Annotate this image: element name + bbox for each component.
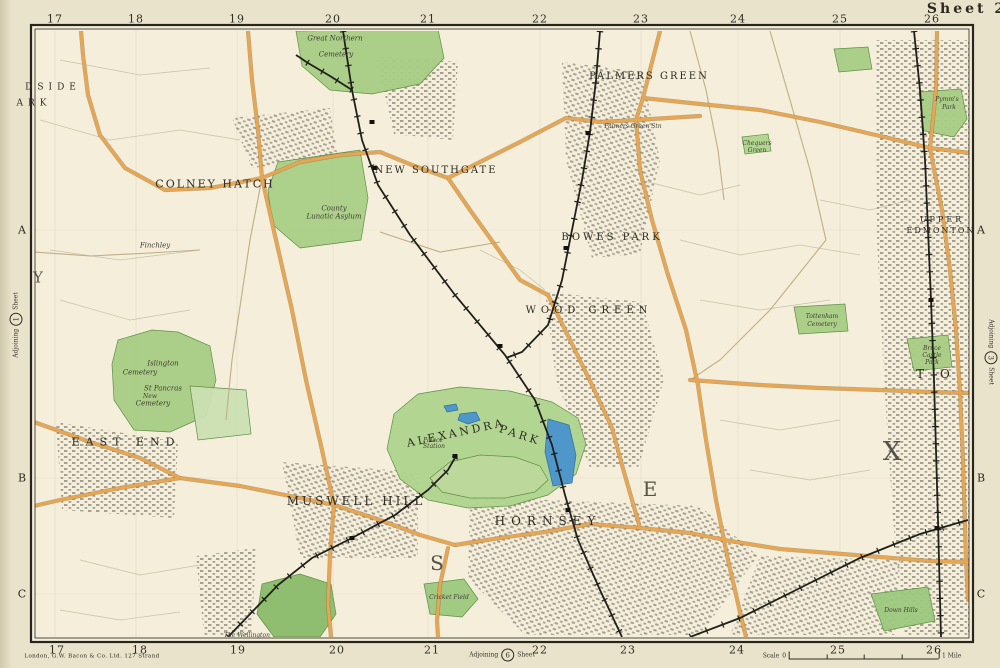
grid-number-top-19: 19	[229, 14, 245, 25]
grid-number-top-26: 26	[924, 14, 940, 25]
grid-number-top-23: 23	[633, 14, 649, 25]
adjoining-bottom-sheet-number: 6	[501, 649, 514, 662]
map-label-ark: ARK	[17, 100, 52, 109]
map-label-cemetery: Cemetery	[123, 370, 158, 377]
map-label-great-northern: Great Northern	[307, 36, 362, 43]
map-label-bowes-park: BOWES PARK	[561, 233, 662, 243]
scale-zero: 0	[782, 653, 786, 660]
adjoining-right-sheet-number: 3	[985, 351, 998, 364]
grid-number-top-21: 21	[420, 14, 436, 25]
map-label-finchley: Finchley	[140, 243, 170, 250]
grid-number-top-20: 20	[325, 14, 341, 25]
map-sheet: Sheet 2 COLNEY HATCHNEW SOUTHGATEPALMERS…	[0, 0, 1000, 668]
map-label-cemetery: Cemetery	[136, 401, 171, 408]
map-label-dside: DSIDE	[25, 84, 81, 93]
station-marker	[935, 526, 940, 530]
station-marker	[564, 246, 569, 250]
map-label-colney-hatch: COLNEY HATCH	[155, 179, 274, 190]
map-label-palmers-green-stn: Palmers Green Stn	[604, 124, 661, 130]
scale-tick	[902, 655, 903, 659]
map-label-green: Green	[748, 148, 767, 154]
station-marker	[566, 508, 571, 512]
map-label-park: Park	[942, 105, 956, 111]
adjoining-right-word: Adjoining	[988, 319, 995, 348]
map-label-x: X	[883, 439, 902, 465]
grid-number-bottom-19: 19	[230, 645, 246, 656]
park-highgate-wood	[257, 574, 336, 637]
station-marker	[350, 536, 355, 540]
station-marker	[929, 298, 934, 302]
map-label-the-wellington: The Wellington	[224, 633, 270, 639]
station-marker	[370, 120, 375, 124]
map-label-wood-green: WOOD GREEN	[526, 306, 653, 316]
map-label-tottenham: Tottenham	[806, 314, 839, 320]
grid-number-bottom-20: 20	[329, 645, 345, 656]
map-label-cricket-field: Cricket Field	[429, 595, 469, 601]
grid-number-top-25: 25	[832, 14, 848, 25]
grid-number-bottom-24: 24	[729, 645, 745, 656]
adjoining-left-note: Adjoining 1 Sheet	[10, 292, 23, 358]
scale-bar: Scale 0 1 Mile	[763, 651, 962, 660]
grid-letter-right-C: C	[977, 589, 985, 600]
adjoining-bottom-note: Adjoining 6 Sheet	[469, 649, 535, 662]
map-label-lunatic-asylum: Lunatic Asylum	[306, 214, 361, 221]
park-broomfield-corner	[834, 47, 872, 72]
scale-tick	[827, 655, 828, 659]
map-label-st-pancras: St Pancras	[144, 386, 182, 393]
park-coldfall-wood	[190, 386, 251, 440]
scale-tick	[864, 655, 865, 659]
grid-number-top-17: 17	[47, 14, 63, 25]
map-label-cemetery: Cemetery	[319, 52, 354, 59]
station-marker	[453, 454, 458, 458]
map-label-palmers-green: PALMERS GREEN	[589, 72, 709, 82]
map-label-upper: UPPER	[920, 216, 964, 224]
urban-area-fortis-bottom-built	[196, 548, 256, 635]
scale-label: Scale	[763, 653, 780, 660]
map-label-pymm-s: Pymm's	[935, 97, 959, 103]
map-label-down-hills: Down Hills	[884, 608, 917, 614]
grid-letter-left-A: A	[18, 225, 26, 236]
station-marker	[586, 131, 591, 135]
grid-number-bottom-21: 21	[424, 645, 440, 656]
map-label-park: Park	[925, 360, 939, 366]
adjoining-right-note: Adjoining 3 Sheet	[985, 319, 998, 385]
map-label-e: E	[643, 479, 658, 499]
map-label-islington: Islington	[147, 361, 178, 368]
adjoining-left-sheet-number: 1	[10, 313, 23, 326]
park-asylum-grounds	[268, 150, 368, 248]
scale-tick	[939, 652, 940, 659]
map-label-cemetery: Cemetery	[807, 322, 837, 328]
map-label-edmonton: EDMONTON	[907, 227, 976, 235]
map-label-hornsey: HORNSEY	[495, 515, 602, 527]
map-label-station: Station	[423, 444, 445, 450]
adjoining-left-word2: Sheet	[13, 292, 20, 310]
scale-mile-label: 1 Mile	[942, 653, 961, 660]
publisher-imprint: London, G.W. Bacon & Co. Ltd. 127 Strand	[24, 654, 159, 660]
map-canvas	[0, 0, 1000, 668]
map-label-t-o: T O	[916, 368, 956, 380]
grid-number-bottom-23: 23	[620, 645, 636, 656]
map-label-county: County	[321, 206, 346, 213]
adjoining-bottom-word: Adjoining	[469, 652, 498, 659]
map-label-muswell-hill: MUSWELL HILL	[287, 495, 426, 507]
map-label-new-southgate: NEW SOUTHGATE	[374, 166, 497, 176]
grid-number-top-24: 24	[730, 14, 746, 25]
grid-letter-right-B: B	[977, 473, 985, 484]
scale-bar-line	[789, 651, 939, 660]
map-label-y: Y	[33, 271, 43, 286]
station-marker	[498, 344, 503, 348]
adjoining-left-word: Adjoining	[13, 329, 20, 358]
grid-number-top-18: 18	[128, 14, 144, 25]
grid-letter-left-C: C	[18, 589, 26, 600]
grid-number-top-22: 22	[532, 14, 548, 25]
grid-letter-right-A: A	[977, 225, 985, 236]
scale-tick	[789, 652, 790, 659]
adjoining-right-word2: Sheet	[988, 367, 995, 385]
grid-letter-left-B: B	[18, 473, 26, 484]
map-label-east-end: EAST END	[72, 437, 181, 448]
map-label-s: S	[430, 553, 444, 573]
adjoining-bottom-word2: Sheet	[517, 652, 535, 659]
